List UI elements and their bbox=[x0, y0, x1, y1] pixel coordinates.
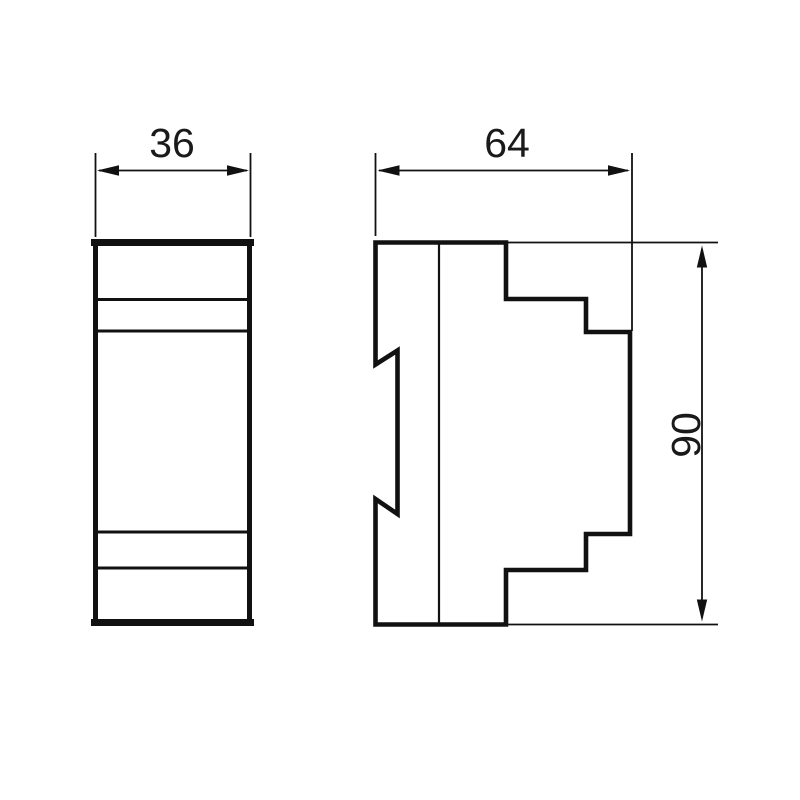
dim64-arrowhead-left bbox=[378, 165, 400, 175]
dim36-arrowhead-right bbox=[227, 165, 249, 175]
drawing-svg: 36 64 90 bbox=[0, 0, 800, 800]
technical-drawing-canvas: 36 64 90 bbox=[0, 0, 800, 800]
dim64-arrowhead-right bbox=[608, 165, 630, 175]
dim90-arrowhead-bottom bbox=[697, 600, 707, 622]
dim36-arrowhead-left bbox=[97, 165, 119, 175]
dim64-label: 64 bbox=[484, 120, 530, 166]
front-view bbox=[91, 240, 254, 626]
dim36-label: 36 bbox=[149, 120, 195, 166]
dimension-front-width: 36 bbox=[96, 120, 251, 237]
side-view-outline bbox=[376, 243, 631, 625]
side-view bbox=[376, 243, 631, 625]
dim90-label: 90 bbox=[663, 412, 709, 458]
dim90-arrowhead-top bbox=[697, 246, 707, 268]
